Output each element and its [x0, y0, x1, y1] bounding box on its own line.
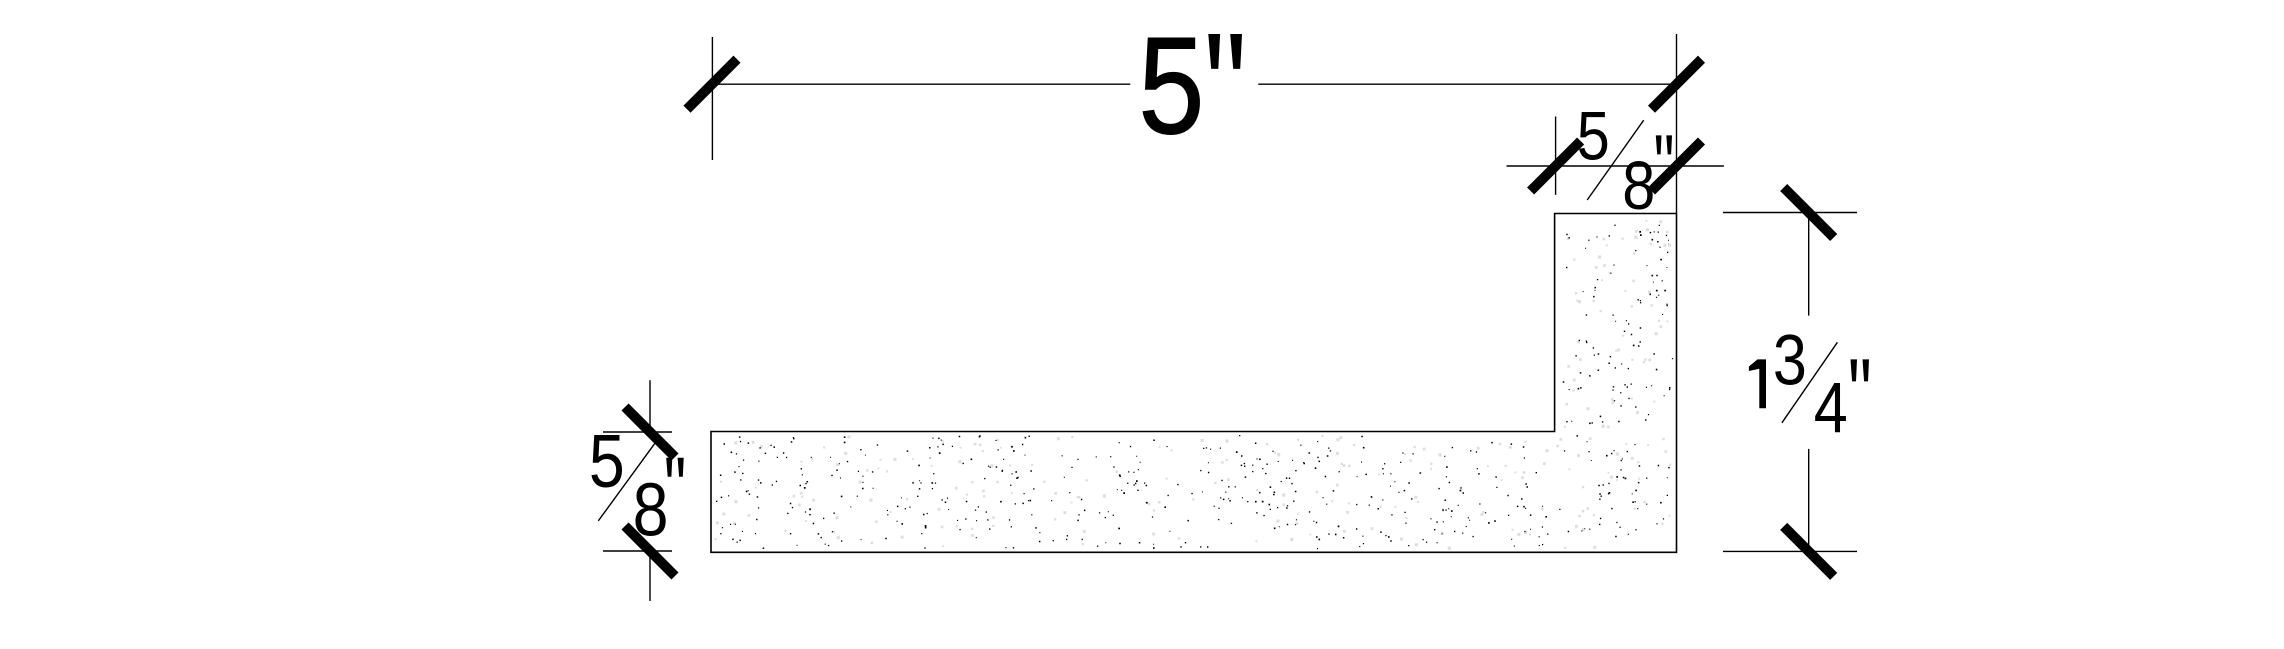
svg-text:4: 4: [1814, 369, 1848, 448]
svg-text:5: 5: [589, 419, 625, 503]
svg-text:5: 5: [1577, 97, 1610, 174]
svg-text:8: 8: [633, 468, 669, 552]
svg-text:3: 3: [1773, 321, 1807, 400]
svg-text:5: 5: [1138, 9, 1204, 163]
svg-text:8: 8: [1622, 147, 1655, 224]
